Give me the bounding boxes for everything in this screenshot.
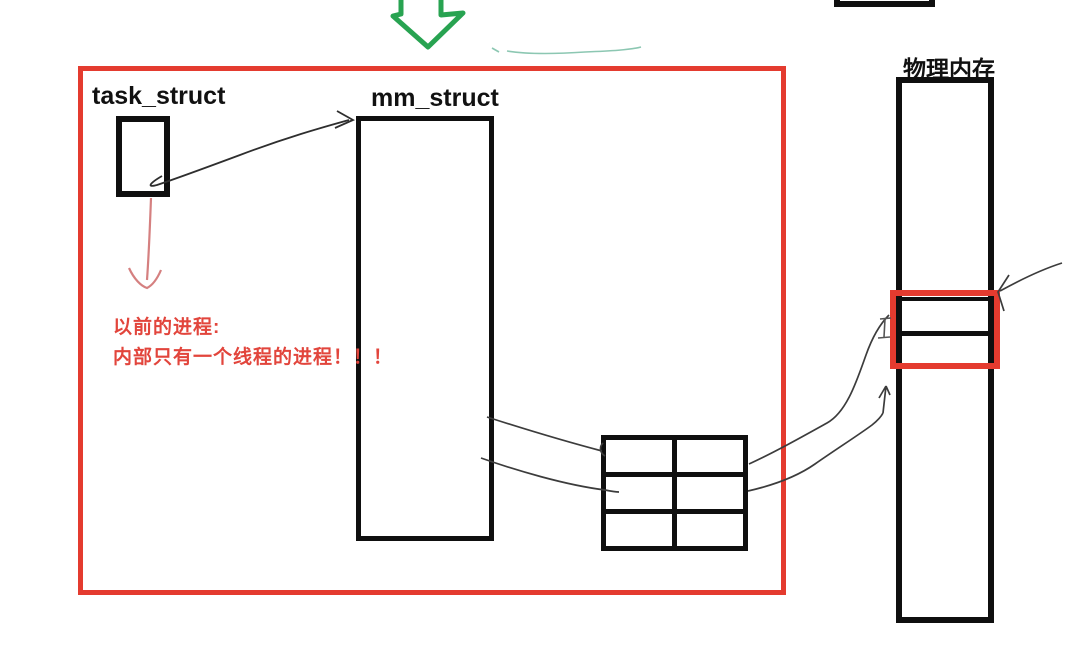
memory-up-arrowhead-icon xyxy=(879,386,890,413)
mm-struct-label: mm_struct xyxy=(371,84,499,113)
green-down-arrow-icon xyxy=(393,0,463,47)
page-table-grid xyxy=(601,435,748,551)
mm-struct-box xyxy=(356,116,494,541)
teal-underline-squiggle xyxy=(492,47,641,53)
task-struct-box xyxy=(116,116,170,197)
red-note-line1: 以前的进程: xyxy=(113,312,220,339)
grid-cell xyxy=(606,477,672,509)
task-struct-label: task_struct xyxy=(92,82,225,111)
right-side-to-highlight-arrow xyxy=(998,263,1062,311)
grid-cell xyxy=(677,514,743,546)
grid-cell xyxy=(606,514,672,546)
top-right-partial-box xyxy=(834,0,935,7)
red-note-line2: 内部只有一个线程的进程！！！ xyxy=(113,342,393,369)
whiteboard-canvas: task_struct mm_struct 物理内存 以前的进程: 内部只有一个… xyxy=(0,0,1077,657)
grid-cell xyxy=(677,440,743,472)
red-highlight-box xyxy=(890,290,1000,369)
grid-cell xyxy=(606,440,672,472)
grid-cell xyxy=(677,477,743,509)
